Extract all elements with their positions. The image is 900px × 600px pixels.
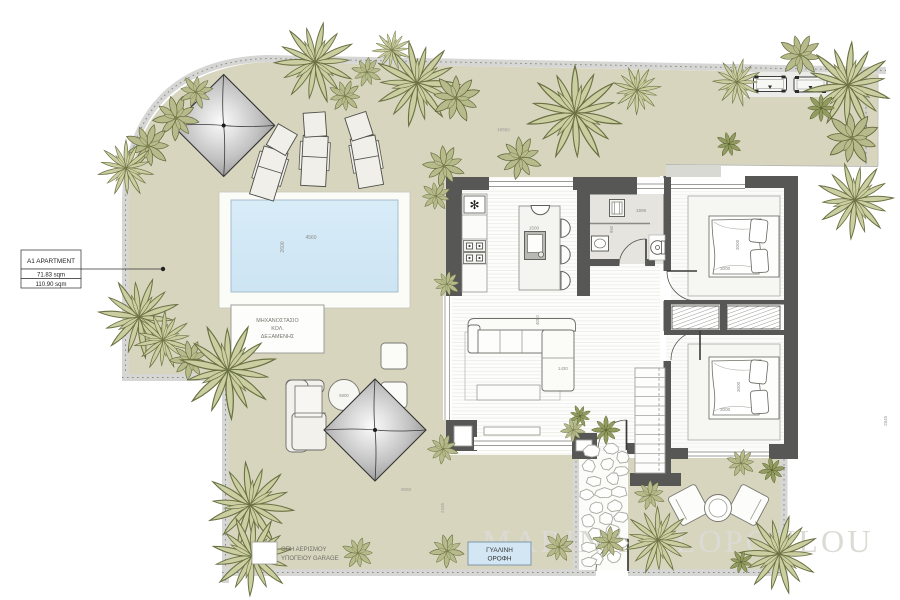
svg-text:1430: 1430 [558,366,568,371]
svg-text:2600: 2600 [280,241,286,252]
svg-text:950: 950 [609,225,614,233]
svg-text:ΔΕΞΑΜΕΝΗΣ: ΔΕΞΑΜΕΝΗΣ [261,334,295,340]
svg-text:ΚΟΛ.: ΚΟΛ. [271,326,284,332]
svg-text:ΟΠΗ ΑΕΡΙΣΜΟΥ: ΟΠΗ ΑΕΡΙΣΜΟΥ [281,547,327,553]
svg-text:1995: 1995 [636,208,647,213]
svg-text:ΓΥΑΛΙΝΗ: ΓΥΑΛΙΝΗ [486,547,513,554]
svg-text:5800: 5800 [339,393,349,398]
svg-text:16590: 16590 [497,127,510,132]
svg-text:9050: 9050 [401,487,412,492]
svg-text:A1 APARTMENT: A1 APARTMENT [27,258,75,265]
svg-text:110.90 sqm: 110.90 sqm [36,282,67,288]
svg-text:71.83 sqm: 71.83 sqm [37,273,65,279]
svg-text:4060: 4060 [535,315,540,325]
svg-text:3000: 3000 [735,239,740,250]
svg-text:2445: 2445 [440,502,445,513]
svg-text:4560: 4560 [305,235,316,241]
svg-text:✻: ✻ [469,198,479,212]
svg-text:ΜΗΧΑΝΟΣΤΑΣΙΟ: ΜΗΧΑΝΟΣΤΑΣΙΟ [256,318,299,324]
svg-text:2845: 2845 [883,415,888,426]
svg-text:ΥΠΟΓΕΙΟΥ GARAGE: ΥΠΟΓΕΙΟΥ GARAGE [281,556,339,562]
svg-text:3000: 3000 [720,407,731,412]
svg-text:1500: 1500 [529,226,540,231]
svg-text:ΟΡΟΦΗ: ΟΡΟΦΗ [488,556,512,563]
svg-text:3000: 3000 [736,381,741,392]
svg-text:3000: 3000 [720,266,731,271]
